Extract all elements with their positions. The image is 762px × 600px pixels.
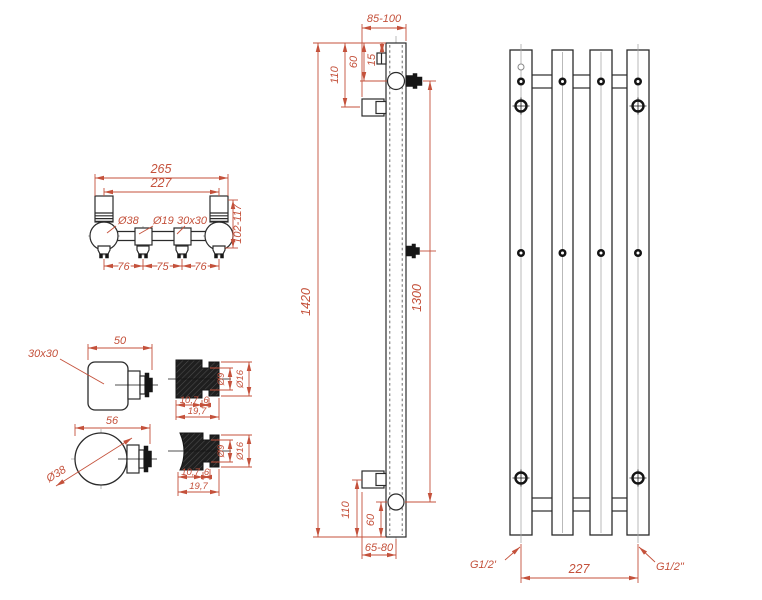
cross-section-round: Ø9 Ø16 10,7 6 19,7 <box>168 433 252 496</box>
middle-fitting <box>406 244 420 258</box>
dim-wall-distance-bottom: 65-80 <box>365 542 394 554</box>
weld-dots <box>517 78 642 258</box>
dim-spacing-1: 76 <box>117 261 130 273</box>
dim-wall-distance-top: 85-100 <box>367 13 402 25</box>
dim-outer-diameter: Ø16 <box>235 441 246 461</box>
square-tube-section <box>135 228 152 245</box>
dim-length-total: 19,7 <box>189 481 208 492</box>
bottom-wall-bracket <box>362 471 386 488</box>
dim-spacing-3: 76 <box>194 261 207 273</box>
dim-connection-spacing: 227 <box>150 176 173 190</box>
dim-bottom-bracket-offset: 110 <box>340 500 352 518</box>
top-view: 265 227 Ø38 Ø19 30x30 102-117 76 75 76 <box>88 162 244 273</box>
label-thread-right: G1/2" <box>656 561 685 573</box>
detail-square-tube: 30x30 50 <box>28 335 158 410</box>
dim-depth-range: 102-117 <box>232 203 244 243</box>
front-view: G1/2' G1/2" 227 <box>470 44 685 583</box>
square-tube-profile <box>88 362 128 410</box>
dim-length-a: 10,7 <box>181 467 200 478</box>
technical-drawing-canvas: 265 227 Ø38 Ø19 30x30 102-117 76 75 76 <box>0 0 762 600</box>
bottom-crossbar <box>521 498 638 511</box>
dim-inner-diameter: Ø9 <box>216 372 227 386</box>
label-pipe-diameter: Ø19 <box>152 215 174 227</box>
dim-length-a: 10,7 <box>180 395 199 406</box>
dim-connection-height: 1300 <box>410 284 424 312</box>
dim-inner-diameter: Ø9 <box>216 444 227 458</box>
dim-connection-width: 227 <box>568 562 591 576</box>
top-wall-bracket <box>362 99 386 116</box>
side-view: 85-100 110 60 15 1420 1300 110 60 65-80 <box>299 13 436 559</box>
dim-top-bracket-offset: 110 <box>329 65 341 83</box>
square-tube-section <box>174 228 191 245</box>
dim-top-vent-offset: 15 <box>366 53 378 66</box>
label-square-profile: 30x30 <box>177 215 208 227</box>
vertical-tube <box>386 43 406 537</box>
dim-spacing-2: 75 <box>156 261 169 273</box>
cross-section-flat: Ø9 Ø16 10,7 6 19,7 <box>168 360 252 420</box>
dim-round-length: 56 <box>106 415 119 427</box>
vent-hole <box>518 64 524 70</box>
label-round-diameter: Ø38 <box>44 463 70 485</box>
label-square-profile: 30x30 <box>28 348 59 360</box>
top-connection-fitting <box>406 74 422 89</box>
dim-square-length: 50 <box>114 335 127 347</box>
dim-overall-width: 265 <box>150 162 172 176</box>
top-crossbar <box>521 75 638 88</box>
dim-top-connection-offset: 60 <box>348 55 360 68</box>
dim-length-b: 6 <box>204 467 210 478</box>
dim-length-b: 6 <box>203 395 209 406</box>
section-profile <box>180 433 219 470</box>
bottom-connection-hole <box>388 494 404 510</box>
dim-bottom-connection-offset: 60 <box>365 513 377 526</box>
dim-length-total: 19,7 <box>188 406 207 417</box>
label-thread-left: G1/2' <box>470 559 497 571</box>
dim-total-height: 1420 <box>299 288 313 316</box>
top-connection-hole <box>388 73 405 90</box>
detail-round-tube: 56 Ø38 <box>44 415 157 489</box>
label-tube-diameter: Ø38 <box>117 215 140 227</box>
dim-outer-diameter: Ø16 <box>235 369 246 389</box>
bottom-nipples <box>98 246 225 258</box>
